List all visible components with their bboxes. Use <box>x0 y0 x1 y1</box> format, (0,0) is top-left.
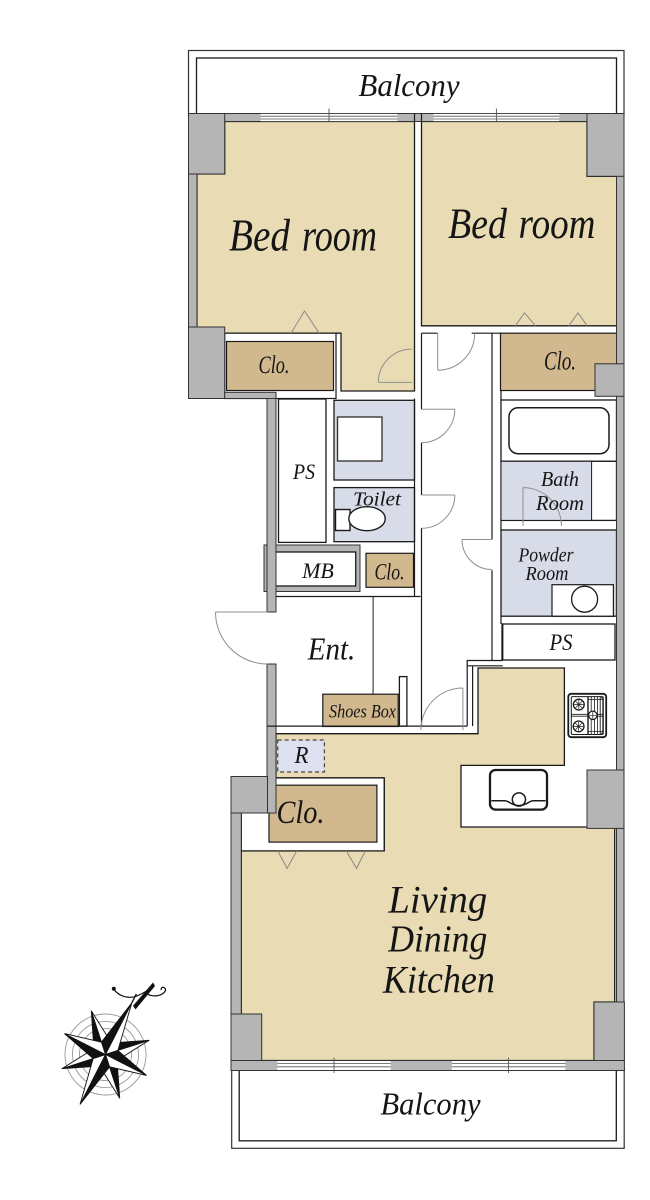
svg-text:Dining: Dining <box>387 919 487 961</box>
svg-text:PS: PS <box>549 630 573 655</box>
svg-text:room: room <box>302 211 377 261</box>
svg-text:Room: Room <box>525 563 569 585</box>
svg-text:room: room <box>519 201 596 248</box>
svg-text:R: R <box>294 743 309 769</box>
svg-text:MB: MB <box>301 558 334 583</box>
svg-text:Living: Living <box>387 879 487 922</box>
svg-text:Balcony: Balcony <box>359 67 461 103</box>
svg-text:Shoes Box: Shoes Box <box>329 702 396 723</box>
svg-text:Bed: Bed <box>448 201 507 248</box>
svg-text:Toilet: Toilet <box>353 490 402 511</box>
svg-text:Room: Room <box>535 491 584 515</box>
svg-text:Clo.: Clo. <box>259 352 290 379</box>
svg-text:Clo.: Clo. <box>375 560 405 585</box>
svg-text:Bath: Bath <box>541 467 579 491</box>
svg-text:Kitchen: Kitchen <box>382 958 495 1001</box>
svg-text:Bed: Bed <box>229 211 290 261</box>
svg-text:Clo.: Clo. <box>277 795 325 831</box>
svg-text:PS: PS <box>292 459 315 484</box>
svg-text:Ent.: Ent. <box>307 631 355 667</box>
svg-text:Balcony: Balcony <box>381 1086 482 1122</box>
svg-text:Clo.: Clo. <box>544 347 576 376</box>
